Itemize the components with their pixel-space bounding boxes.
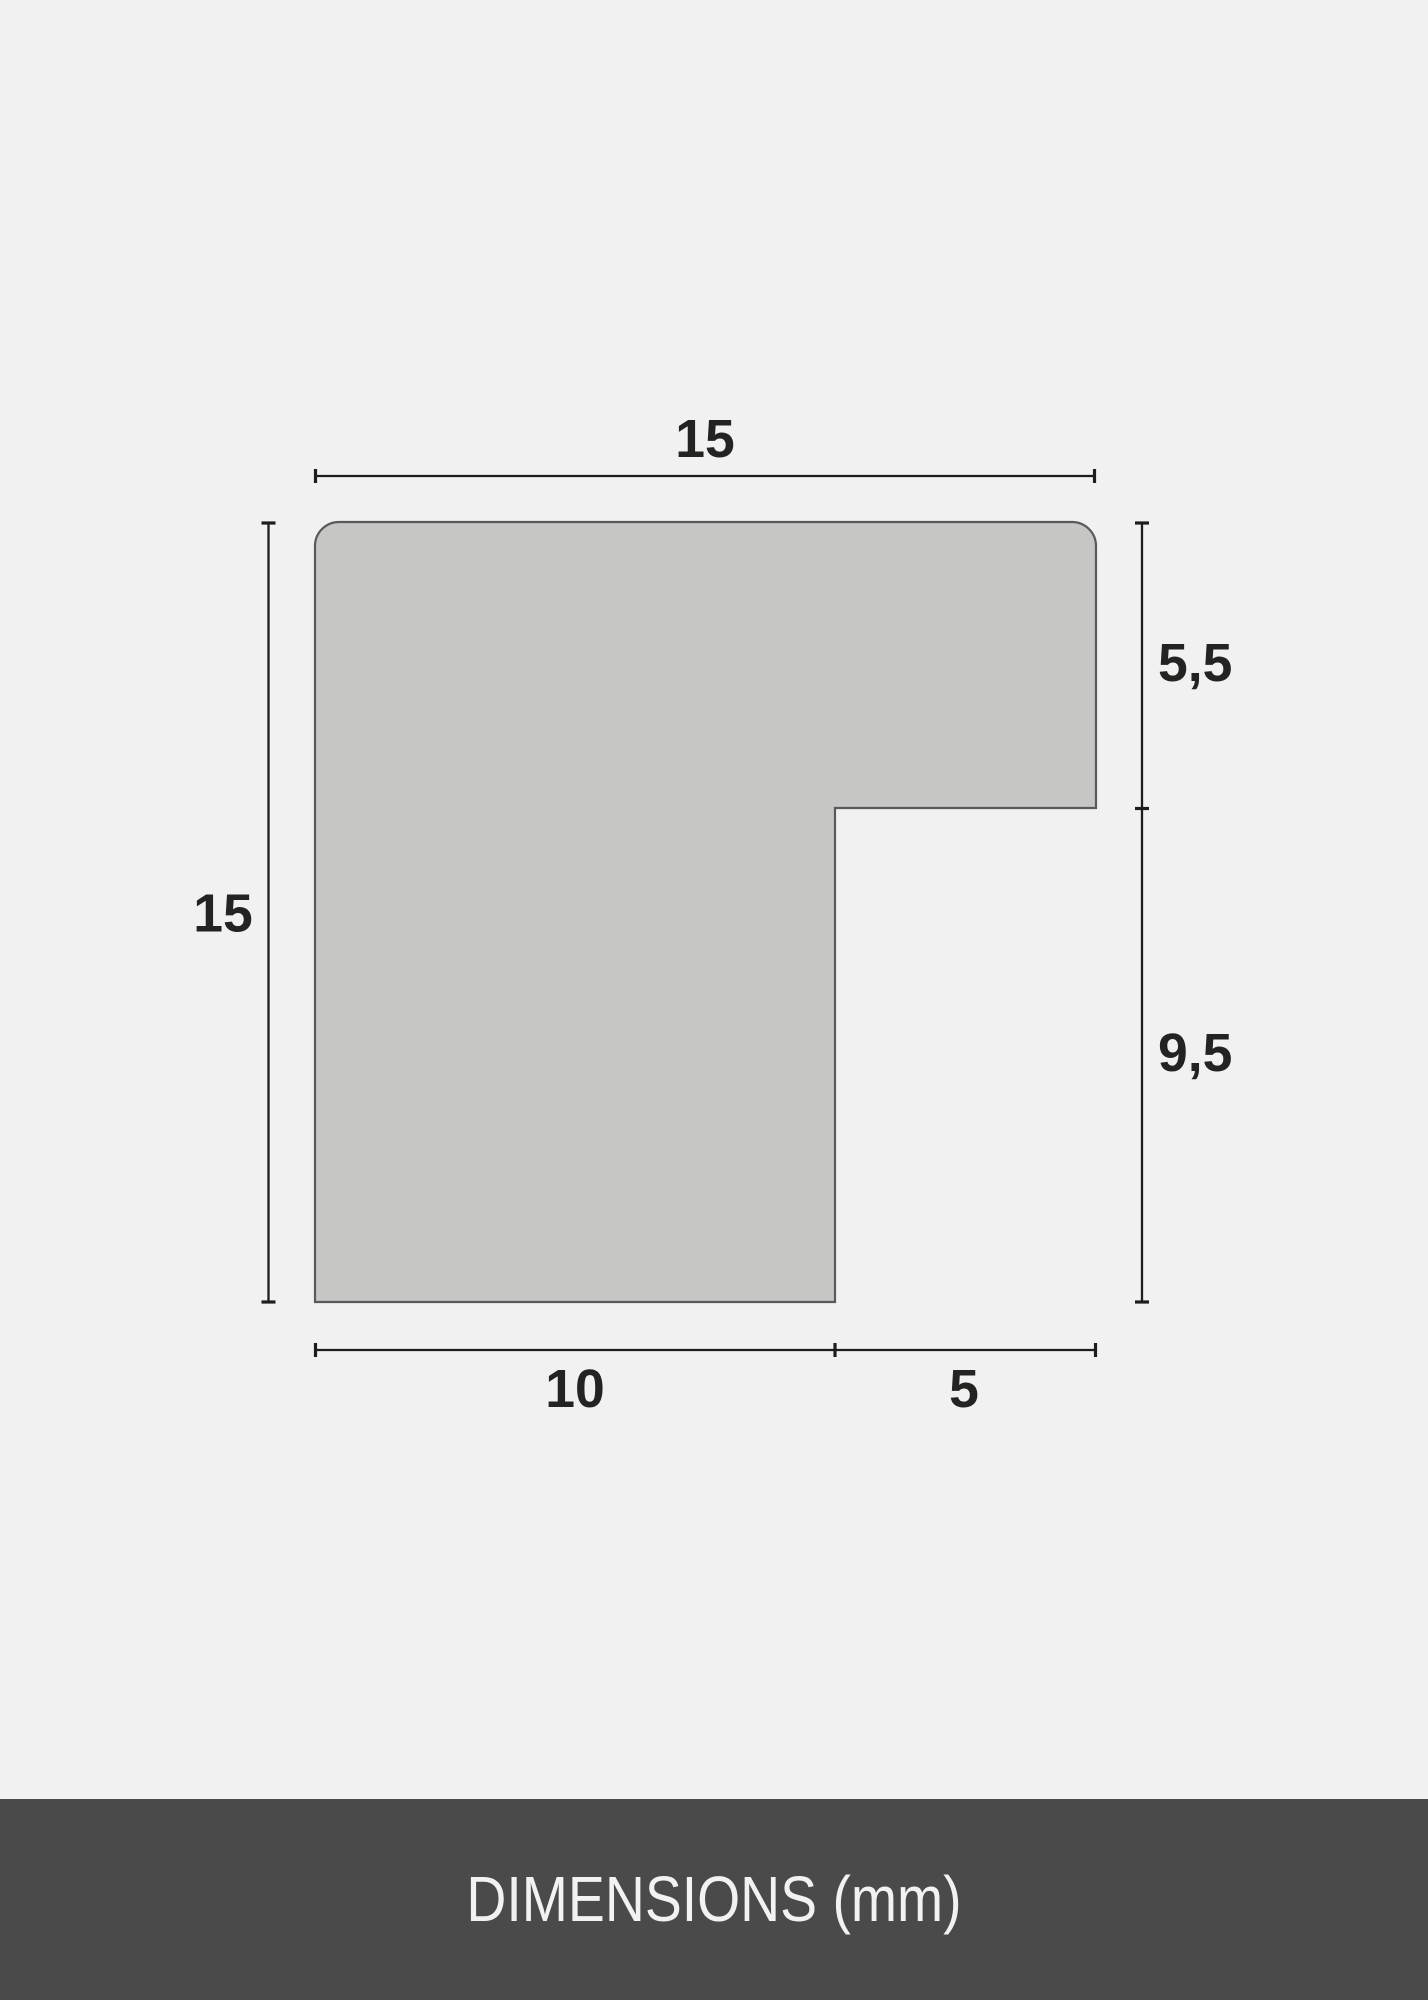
svg-text:15: 15 xyxy=(675,410,735,469)
svg-text:9,5: 9,5 xyxy=(1158,1024,1232,1083)
svg-text:15: 15 xyxy=(193,885,253,944)
svg-text:10: 10 xyxy=(545,1360,605,1419)
svg-text:5,5: 5,5 xyxy=(1158,634,1232,693)
svg-text:5: 5 xyxy=(949,1360,979,1419)
